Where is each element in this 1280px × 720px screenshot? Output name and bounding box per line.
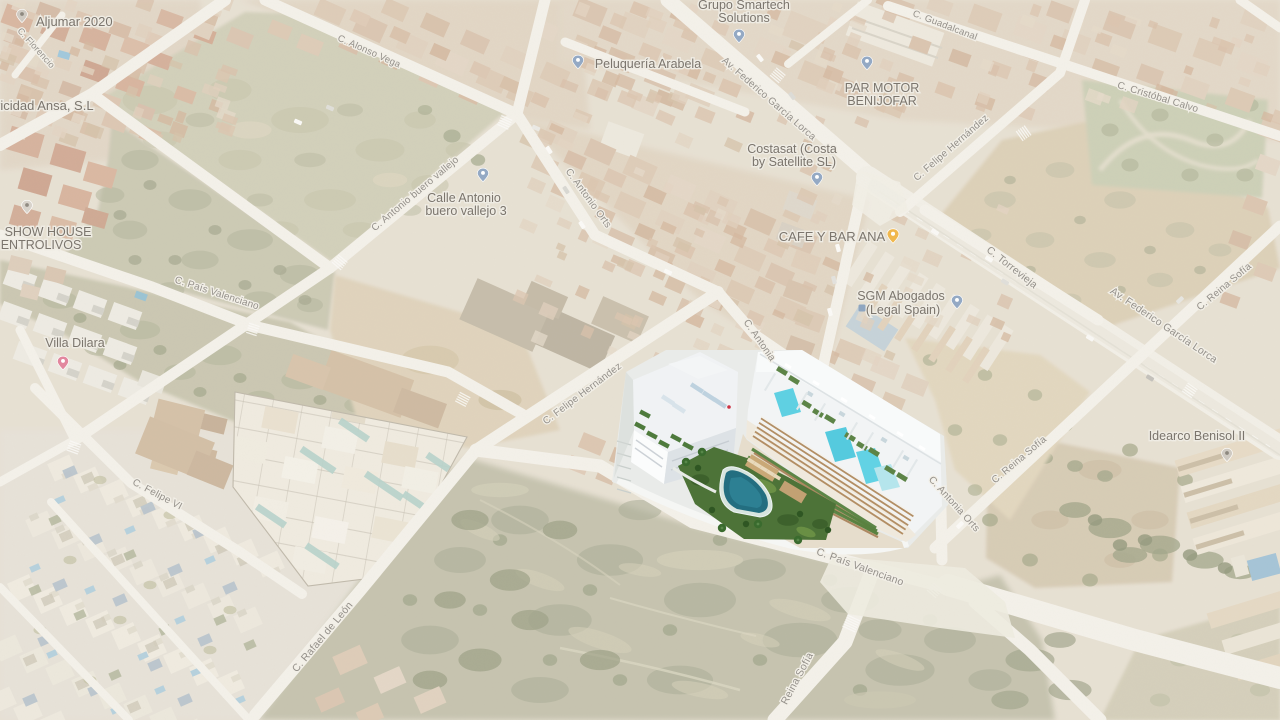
svg-text:by Satellite SL): by Satellite SL) xyxy=(752,155,836,169)
svg-text:buero vallejo 3: buero vallejo 3 xyxy=(425,204,506,218)
svg-text:Villa Dilara: Villa Dilara xyxy=(45,336,105,350)
svg-text:PAR MOTOR: PAR MOTOR xyxy=(845,81,920,95)
svg-text:SGM Abogados: SGM Abogados xyxy=(857,289,945,303)
svg-text:Costasat (Costa: Costasat (Costa xyxy=(747,142,837,156)
svg-text:SHOW HOUSE: SHOW HOUSE xyxy=(5,225,92,239)
svg-text:ricidad Ansa, S.L: ricidad Ansa, S.L xyxy=(0,98,94,113)
svg-text:Calle Antonio: Calle Antonio xyxy=(427,191,501,205)
svg-text:(Legal Spain): (Legal Spain) xyxy=(866,303,940,317)
svg-text:CAFE Y BAR ANA: CAFE Y BAR ANA xyxy=(779,229,886,244)
svg-text:Peluquería Arabela: Peluquería Arabela xyxy=(595,57,701,71)
svg-text:ENTROLIVOS: ENTROLIVOS xyxy=(1,238,82,252)
svg-text:Solutions: Solutions xyxy=(718,11,769,25)
svg-text:BENIJOFAR: BENIJOFAR xyxy=(847,94,916,108)
svg-text:Aljumar 2020: Aljumar 2020 xyxy=(36,14,113,29)
svg-text:Idearco Benisol II: Idearco Benisol II xyxy=(1149,429,1246,443)
